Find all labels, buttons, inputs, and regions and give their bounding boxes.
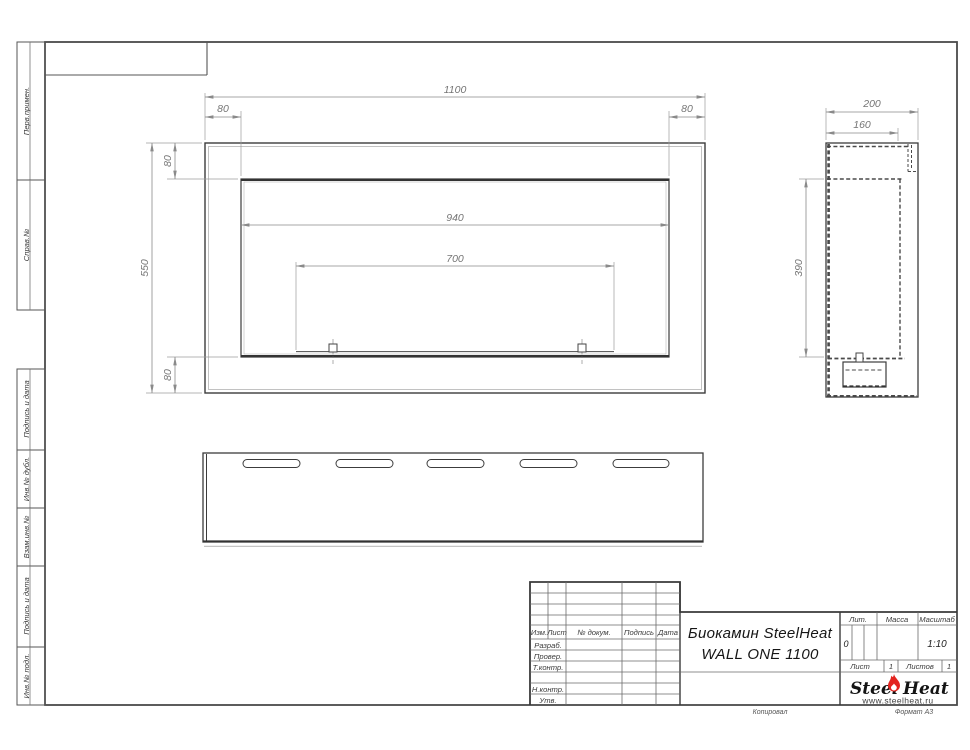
vent-slot [336, 460, 393, 468]
sheets-label: Листов [905, 662, 934, 671]
dim-bottom-margin: 80 [162, 369, 174, 381]
drawing-sheet: Перв.примен. Справ.№ Подпись и дата Инв.… [0, 0, 970, 750]
copy-note: Копировал [753, 709, 788, 716]
margin-label: Справ.№ [22, 229, 31, 261]
title-block: Изм. Лист № докум. Подпись Дата Разраб. … [530, 582, 957, 706]
dim-top-margin: 80 [162, 155, 174, 167]
doc-title-line2: WALL ONE 1100 [701, 646, 819, 663]
steelheat-logo: Steel Heat www.steelheat.ru [850, 674, 949, 706]
side-outline [826, 143, 918, 397]
dim-burner-width: 700 [446, 253, 464, 265]
vent-slot [613, 460, 669, 468]
margin-label: Инв.№ подл. [22, 653, 31, 698]
margin-block-inv-podl: Инв.№ подл. [17, 647, 45, 705]
scale-label: Масштаб [919, 615, 955, 624]
col-izm: Изм. [531, 628, 547, 637]
side-view: 200 160 390 [793, 98, 918, 397]
document-title: Биокамин SteelHeat WALL ONE 1100 [680, 625, 840, 672]
margin-block-podpis-data-2: Подпись и дата [17, 566, 45, 647]
row-tkontr: Т.контр. [533, 663, 564, 672]
flame-icon [888, 674, 900, 692]
margin-block-inv-dubl: Инв.№ дубл. [17, 450, 45, 508]
dim-inner-depth: 160 [853, 119, 871, 131]
vent-slot [520, 460, 577, 468]
row-razrab: Разраб. [534, 641, 561, 650]
lit-value: 0 [843, 639, 848, 649]
lit-label: Лит. [848, 615, 867, 624]
col-podpis: Подпись [624, 628, 654, 637]
footer-notes: Копировал Формат А3 [753, 709, 934, 716]
margin-label: Взам.инв.№ [22, 516, 31, 559]
col-list: Лист [546, 628, 567, 637]
sheet-label: Лист [849, 662, 870, 671]
dim-opening-height: 390 [793, 259, 805, 277]
format-note: Формат А3 [895, 709, 933, 716]
col-data: Дата [657, 628, 678, 637]
bottom-view [203, 453, 703, 546]
margin-label: Подпись и дата [22, 577, 31, 634]
sheet-value: 1 [889, 662, 893, 671]
margin-column: Перв.примен. Справ.№ Подпись и дата Инв.… [17, 42, 45, 705]
margin-block-vzam-inv: Взам.инв.№ [17, 508, 45, 566]
lit-massa-masshtab: Лит. Масса Масштаб 0 1:10 Лист 1 Листов … [840, 612, 957, 672]
margin-block-podpis-data-1: Подпись и дата [17, 369, 45, 450]
margin-label: Инв.№ дубл. [22, 457, 31, 502]
dim-overall-width: 1100 [444, 84, 467, 96]
format-stamp-block [45, 42, 207, 75]
row-nkontr: Н.контр. [532, 685, 564, 694]
scale-value: 1:10 [927, 639, 947, 650]
dim-opening-width: 940 [446, 212, 464, 224]
front-view: 1100 80 80 550 80 80 940 700 [139, 84, 705, 393]
col-dokum: № докум. [577, 628, 610, 637]
margin-block-perv-primen: Перв.примен. [17, 42, 45, 180]
margin-block-sprav-no: Справ.№ [17, 180, 45, 310]
margin-label: Подпись и дата [22, 380, 31, 437]
dim-overall-height: 550 [139, 259, 151, 277]
front-opening [241, 179, 669, 357]
row-utv: Утв. [538, 696, 556, 705]
mass-label: Масса [886, 615, 908, 624]
title-block-staff-rows: Разраб. Провер. Т.контр. Н.контр. Утв. [532, 641, 564, 705]
doc-title-line1: Биокамин SteelHeat [688, 625, 833, 642]
row-prover: Провер. [534, 652, 562, 661]
dim-right-margin: 80 [681, 103, 693, 115]
dim-left-margin: 80 [217, 103, 229, 115]
drawing-canvas: Перв.примен. Справ.№ Подпись и дата Инв.… [0, 0, 970, 750]
sheets-value: 1 [947, 662, 951, 671]
vent-slot [427, 460, 484, 468]
margin-label: Перв.примен. [22, 87, 31, 135]
vent-slot [243, 460, 300, 468]
logo-url: www.steelheat.ru [861, 696, 933, 706]
dim-depth: 200 [862, 98, 881, 110]
